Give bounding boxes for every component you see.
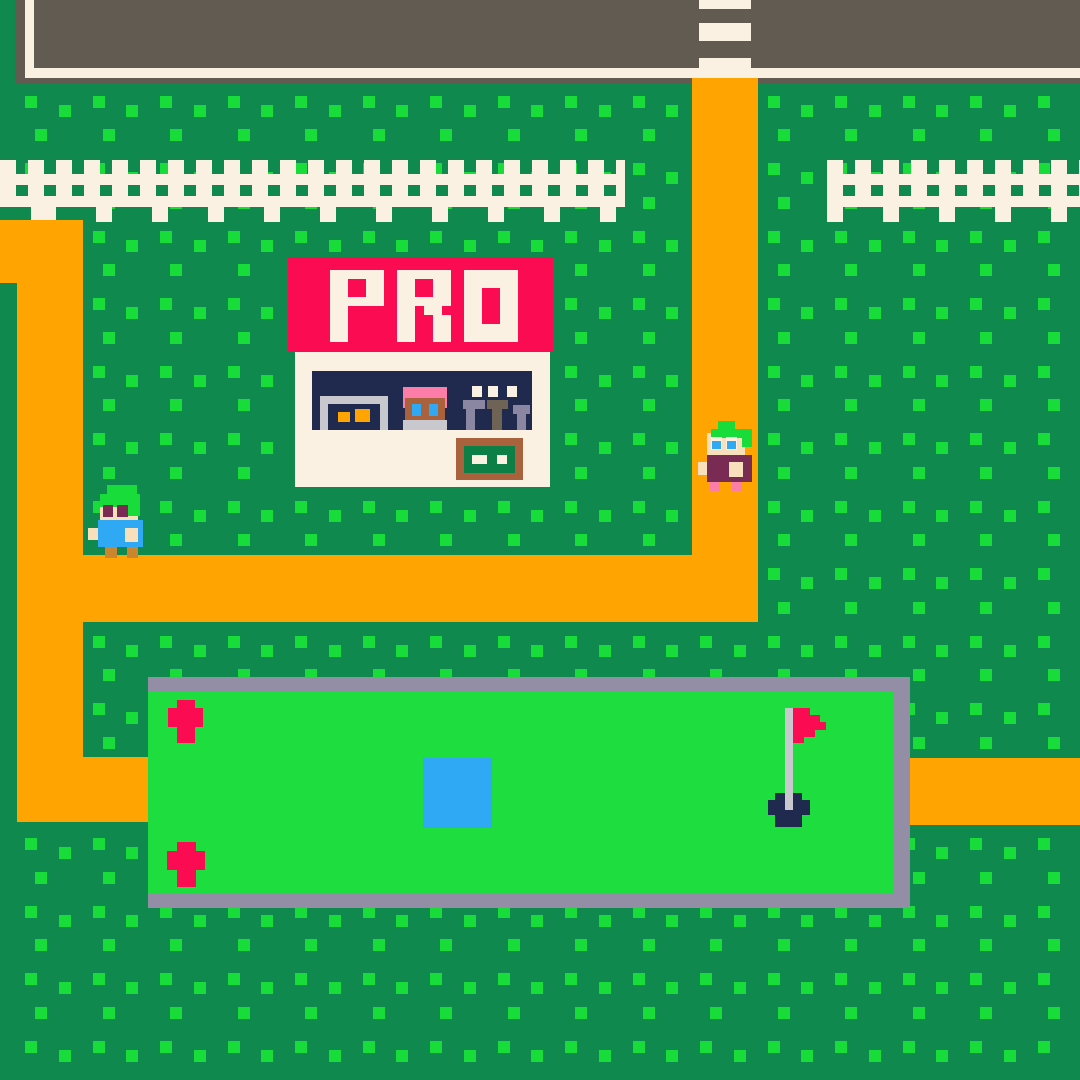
grass-dot: [700, 973, 712, 985]
grass-dot: [801, 645, 813, 657]
grass-dot: [913, 602, 925, 614]
grass-dot: [1004, 712, 1016, 724]
grass-dot: [103, 332, 115, 344]
grass-dot: [170, 264, 182, 276]
shop-sign-letter: [397, 297, 451, 306]
grass-dot: [363, 636, 375, 648]
grass-dot: [1038, 838, 1050, 850]
grass-dot: [261, 510, 273, 522]
grass-dot: [25, 96, 37, 108]
shop-sign-letter: [464, 297, 482, 306]
grass-dot: [970, 703, 982, 715]
grass-dot: [643, 939, 655, 951]
shelf-item: [492, 409, 502, 430]
grass-dot: [913, 264, 925, 276]
grass-dot: [643, 197, 655, 209]
grass-dot: [194, 240, 206, 252]
grass-dot: [903, 636, 915, 648]
grass-dot: [768, 433, 780, 445]
grass-dot: [531, 105, 543, 117]
grass-dot: [1004, 915, 1016, 927]
shop-sign-letter: [330, 324, 348, 333]
shopkeeper-shirt: [403, 420, 447, 430]
grass-dot: [126, 240, 138, 252]
grass-dot: [643, 264, 655, 276]
grass-dot: [238, 939, 250, 951]
grass-dot: [903, 1041, 915, 1053]
path-center-vertical: [692, 78, 758, 622]
grass-dot: [498, 501, 510, 513]
grass-dot: [913, 534, 925, 546]
grass-dot: [768, 231, 780, 243]
grass-dot: [565, 1041, 577, 1053]
grass-dot: [228, 366, 240, 378]
grass-dot: [194, 375, 206, 387]
grass-dot: [565, 231, 577, 243]
grass-dot: [295, 636, 307, 648]
grass-dot: [194, 442, 206, 454]
grass-dot: [778, 939, 790, 951]
grass-dot: [936, 307, 948, 319]
grass-dot: [295, 96, 307, 108]
grass-dot: [1038, 973, 1050, 985]
shop-sign-letter: [464, 306, 482, 315]
golfer-blue-hand[interactable]: [125, 528, 138, 542]
grass-dot: [430, 96, 442, 108]
grass-dot: [160, 298, 172, 310]
grass-dot: [531, 915, 543, 927]
grass-dot: [363, 231, 375, 243]
grass-dot: [801, 442, 813, 454]
grass-dot: [126, 105, 138, 117]
grass-dot: [464, 1050, 476, 1062]
shop-sign-letter: [464, 279, 518, 288]
grass-dot: [970, 96, 982, 108]
fence-posts-long: [827, 205, 1080, 222]
golfer-blue-eye[interactable]: [117, 505, 128, 517]
shop-light: [507, 386, 517, 397]
grass-dot: [845, 129, 857, 141]
grass-dot: [970, 501, 982, 513]
grass-dot: [305, 129, 317, 141]
flag: [793, 722, 826, 730]
grass-dot: [1038, 433, 1050, 445]
game-viewport[interactable]: PRO: [0, 0, 1080, 1080]
shop-sign-letter: [464, 333, 518, 342]
grass-dot: [35, 872, 47, 884]
grass-dot: [1004, 240, 1016, 252]
grass-dot: [170, 939, 182, 951]
grass-dot: [160, 973, 172, 985]
grass-dot: [1004, 442, 1016, 454]
grass-dot: [464, 645, 476, 657]
grass-dot: [565, 501, 577, 513]
golfer-maroon-pupil[interactable]: [712, 441, 721, 449]
grass-dot: [936, 645, 948, 657]
grass-dot: [1038, 366, 1050, 378]
grass-dot: [531, 1050, 543, 1062]
grass-dot: [228, 231, 240, 243]
grass-dot: [396, 915, 408, 927]
grass-dot: [170, 399, 182, 411]
grass-dot: [103, 129, 115, 141]
grass-dot: [295, 1041, 307, 1053]
grass-dot: [103, 737, 115, 749]
grass-dot: [1048, 602, 1060, 614]
shop-sign-letter: [433, 324, 451, 333]
grass-dot: [93, 96, 105, 108]
grass-dot: [261, 240, 273, 252]
shopkeeper-eye: [429, 404, 438, 416]
golfer-blue-leg[interactable]: [105, 547, 117, 558]
grass-dot: [261, 442, 273, 454]
grass-dot: [430, 231, 442, 243]
grass-dot: [25, 1041, 37, 1053]
grass-dot: [464, 105, 476, 117]
flag-pole: [785, 708, 793, 810]
crosswalk-stripe: [699, 23, 751, 41]
grass-dot: [508, 1007, 520, 1019]
grass-dot: [1038, 1041, 1050, 1053]
grass-dot: [430, 1041, 442, 1053]
grass-dot: [980, 939, 992, 951]
road-curb-bottom: [25, 68, 1080, 78]
grass-dot: [936, 442, 948, 454]
grass-dot: [1038, 501, 1050, 513]
grass-dot: [936, 375, 948, 387]
grass-dot: [710, 939, 722, 951]
grass-dot: [869, 307, 881, 319]
grass-dot: [970, 298, 982, 310]
grass-dot: [936, 577, 948, 589]
shop-sign-letter: [464, 315, 482, 324]
grass-dot: [160, 366, 172, 378]
grass-dot: [1004, 105, 1016, 117]
grass-dot: [970, 1041, 982, 1053]
shop-sign-letter: [464, 288, 482, 297]
grass-dot: [801, 577, 813, 589]
golfer-maroon-arm[interactable]: [698, 462, 707, 475]
grass-dot: [464, 510, 476, 522]
grass-dot: [373, 129, 385, 141]
shop-sign-letter: [330, 315, 348, 324]
grass-dot: [1004, 1050, 1016, 1062]
grass-dot: [768, 973, 780, 985]
grass-dot: [734, 645, 746, 657]
grass-dot: [970, 906, 982, 918]
shelf-item: [513, 405, 530, 414]
grass-dot: [103, 669, 115, 681]
golfer-maroon-pupil[interactable]: [727, 441, 736, 449]
fence-rail: [827, 174, 1080, 185]
grass-dot: [980, 264, 992, 276]
grass-dot: [93, 838, 105, 850]
golfer-blue-arm[interactable]: [88, 528, 98, 540]
grass-dot: [970, 231, 982, 243]
shopkeeper-eye: [412, 404, 421, 416]
grass-dot: [160, 636, 172, 648]
grass-dot: [508, 129, 520, 141]
grass-dot: [170, 534, 182, 546]
grass-dot: [980, 669, 992, 681]
grass-dot: [295, 501, 307, 513]
grass-dot: [869, 510, 881, 522]
grass-dot: [396, 105, 408, 117]
golfer-blue-hair[interactable]: [128, 505, 140, 516]
grass-dot: [329, 1050, 341, 1062]
grass-dot: [363, 1041, 375, 1053]
grass-dot: [1004, 307, 1016, 319]
shop-sign-letter: [397, 288, 415, 297]
grass-dot: [103, 872, 115, 884]
flag: [793, 708, 810, 715]
signboard-dash: [472, 455, 487, 464]
grass-dot: [440, 129, 452, 141]
grass-dot: [194, 645, 206, 657]
path-horizontal-band: [83, 555, 758, 622]
grass-dot: [599, 915, 611, 927]
grass-dot: [565, 96, 577, 108]
grass-dot: [464, 240, 476, 252]
grass-dot: [778, 264, 790, 276]
window-frame: [320, 396, 328, 430]
fence-left: [0, 160, 625, 222]
golfer-blue-leg[interactable]: [127, 547, 138, 558]
grass-dot: [913, 399, 925, 411]
grass-dot: [980, 129, 992, 141]
flag: [793, 730, 815, 737]
grass-dot: [845, 534, 857, 546]
path-left-vertical: [17, 220, 83, 822]
grass-dot: [768, 163, 780, 175]
grass-dot: [498, 636, 510, 648]
shelf-item: [463, 400, 485, 409]
grass-dot: [666, 645, 678, 657]
grass-dot: [734, 915, 746, 927]
grass-dot: [633, 973, 645, 985]
shop-sign-letter: [397, 270, 451, 279]
flower: [168, 708, 203, 727]
grass-dot: [835, 973, 847, 985]
grass-dot: [363, 973, 375, 985]
grass-dot: [238, 332, 250, 344]
grass-dot: [599, 442, 611, 454]
grass-dot: [734, 1050, 746, 1062]
grass-dot: [25, 838, 37, 850]
grass-dot: [666, 375, 678, 387]
grass-dot: [160, 231, 172, 243]
grass-dot: [980, 332, 992, 344]
grass-dot: [970, 366, 982, 378]
grass-dot: [126, 645, 138, 657]
grass-dot: [801, 375, 813, 387]
grass-dot: [633, 636, 645, 648]
grass-dot: [1048, 467, 1060, 479]
grass-dot: [295, 973, 307, 985]
shop-sign-letter: [330, 288, 348, 297]
grass-dot: [531, 510, 543, 522]
grass-dot: [238, 264, 250, 276]
grass-dot: [305, 939, 317, 951]
grass-dot: [93, 973, 105, 985]
grass-dot: [845, 399, 857, 411]
grass-dot: [261, 982, 273, 994]
grass-dot: [801, 510, 813, 522]
grass-dot: [1038, 231, 1050, 243]
grass-dot: [801, 982, 813, 994]
grass-dot: [305, 1007, 317, 1019]
crosswalk-stripe: [699, 58, 751, 78]
grass-dot: [508, 939, 520, 951]
grass-dot: [160, 501, 172, 513]
grass-dot: [103, 1007, 115, 1019]
grass-dot: [194, 105, 206, 117]
grass-dot: [599, 240, 611, 252]
shop-sign-letter: [330, 306, 348, 315]
grass-dot: [194, 915, 206, 927]
grass-dot: [575, 332, 587, 344]
grass-dot: [565, 366, 577, 378]
grass-dot: [700, 1041, 712, 1053]
grass-dot: [845, 332, 857, 344]
grass-dot: [980, 872, 992, 884]
grass-dot: [261, 1050, 273, 1062]
grass-dot: [126, 375, 138, 387]
grass-dot: [835, 231, 847, 243]
shop-sign-letter: [433, 315, 451, 324]
grass-dot: [1004, 982, 1016, 994]
grass-dot: [1048, 399, 1060, 411]
grass-dot: [238, 534, 250, 546]
grass-dot: [565, 973, 577, 985]
grass-dot: [869, 375, 881, 387]
grass-dot: [498, 231, 510, 243]
grass-dot: [599, 375, 611, 387]
grass-dot: [93, 906, 105, 918]
grass-dot: [93, 1041, 105, 1053]
grass-dot: [396, 645, 408, 657]
grass-dot: [59, 982, 71, 994]
grass-dot: [1038, 568, 1050, 580]
grass-dot: [835, 96, 847, 108]
grass-dot: [936, 1050, 948, 1062]
grass-dot: [835, 1041, 847, 1053]
grass-dot: [869, 645, 881, 657]
grass-dot: [329, 510, 341, 522]
shop-sign-letter: [330, 297, 384, 306]
grass-dot: [903, 433, 915, 445]
grass-dot: [845, 264, 857, 276]
grass-dot: [633, 366, 645, 378]
water-hazard: [423, 758, 492, 828]
grass-dot: [980, 602, 992, 614]
grass-dot: [35, 1007, 47, 1019]
golf-green-field: [148, 691, 893, 893]
grass-dot: [363, 96, 375, 108]
grass-dot: [228, 973, 240, 985]
grass-dot: [643, 1007, 655, 1019]
grass-dot: [666, 307, 678, 319]
grass-dot: [768, 1041, 780, 1053]
grass-dot: [575, 399, 587, 411]
grass-dot: [599, 307, 611, 319]
golfer-maroon-hand[interactable]: [729, 462, 743, 477]
grass-dot: [25, 973, 37, 985]
grass-dot: [666, 982, 678, 994]
flower: [167, 851, 205, 870]
signboard-dash: [497, 455, 507, 464]
grass-dot: [980, 467, 992, 479]
grass-dot: [643, 332, 655, 344]
grass-dot: [194, 982, 206, 994]
grass-dot: [666, 915, 678, 927]
flag: [793, 737, 804, 743]
grass-dot: [170, 1007, 182, 1019]
shop-sign-letter: [397, 315, 415, 324]
shop-sign-letter: [397, 279, 415, 288]
grass-dot: [633, 96, 645, 108]
grass-dot: [936, 510, 948, 522]
golfer-maroon-leg[interactable]: [710, 482, 720, 491]
grass-dot: [59, 105, 71, 117]
grass-dot: [913, 467, 925, 479]
grass-dot: [913, 939, 925, 951]
grass-dot: [913, 1007, 925, 1019]
path-golf-connector: [83, 757, 150, 822]
grass-dot: [980, 534, 992, 546]
grass-dot: [801, 105, 813, 117]
golfer-blue-eye[interactable]: [103, 505, 113, 517]
grass-dot: [329, 645, 341, 657]
grass-dot: [160, 96, 172, 108]
grass-dot: [1004, 375, 1016, 387]
grass-dot: [575, 264, 587, 276]
grass-dot: [913, 669, 925, 681]
grass-dot: [869, 105, 881, 117]
grass-dot: [508, 534, 520, 546]
grass-dot: [170, 129, 182, 141]
grass-dot: [903, 231, 915, 243]
grass-dot: [93, 366, 105, 378]
grass-dot: [845, 939, 857, 951]
grass-dot: [35, 939, 47, 951]
grass-dot: [498, 973, 510, 985]
grass-dot: [575, 534, 587, 546]
grass-dot: [261, 105, 273, 117]
grass-dot: [1048, 669, 1060, 681]
grass-dot: [1038, 703, 1050, 715]
grass-dot: [464, 915, 476, 927]
grass-dot: [936, 915, 948, 927]
grass-dot: [464, 982, 476, 994]
grass-dot: [126, 307, 138, 319]
grass-dot: [1004, 510, 1016, 522]
grass-dot: [126, 982, 138, 994]
grass-dot: [565, 433, 577, 445]
grass-dot: [768, 568, 780, 580]
grass-dot: [778, 129, 790, 141]
grass-dot: [170, 332, 182, 344]
grass-dot: [396, 240, 408, 252]
path-right-band: [910, 758, 1080, 825]
golfer-maroon-leg[interactable]: [732, 482, 742, 491]
grass-dot: [710, 1007, 722, 1019]
grass-dot: [970, 568, 982, 580]
golfer-maroon-hair[interactable]: [742, 432, 752, 447]
grass-dot: [869, 442, 881, 454]
shop-sign-letter: [366, 288, 384, 297]
grass-dot: [1038, 298, 1050, 310]
